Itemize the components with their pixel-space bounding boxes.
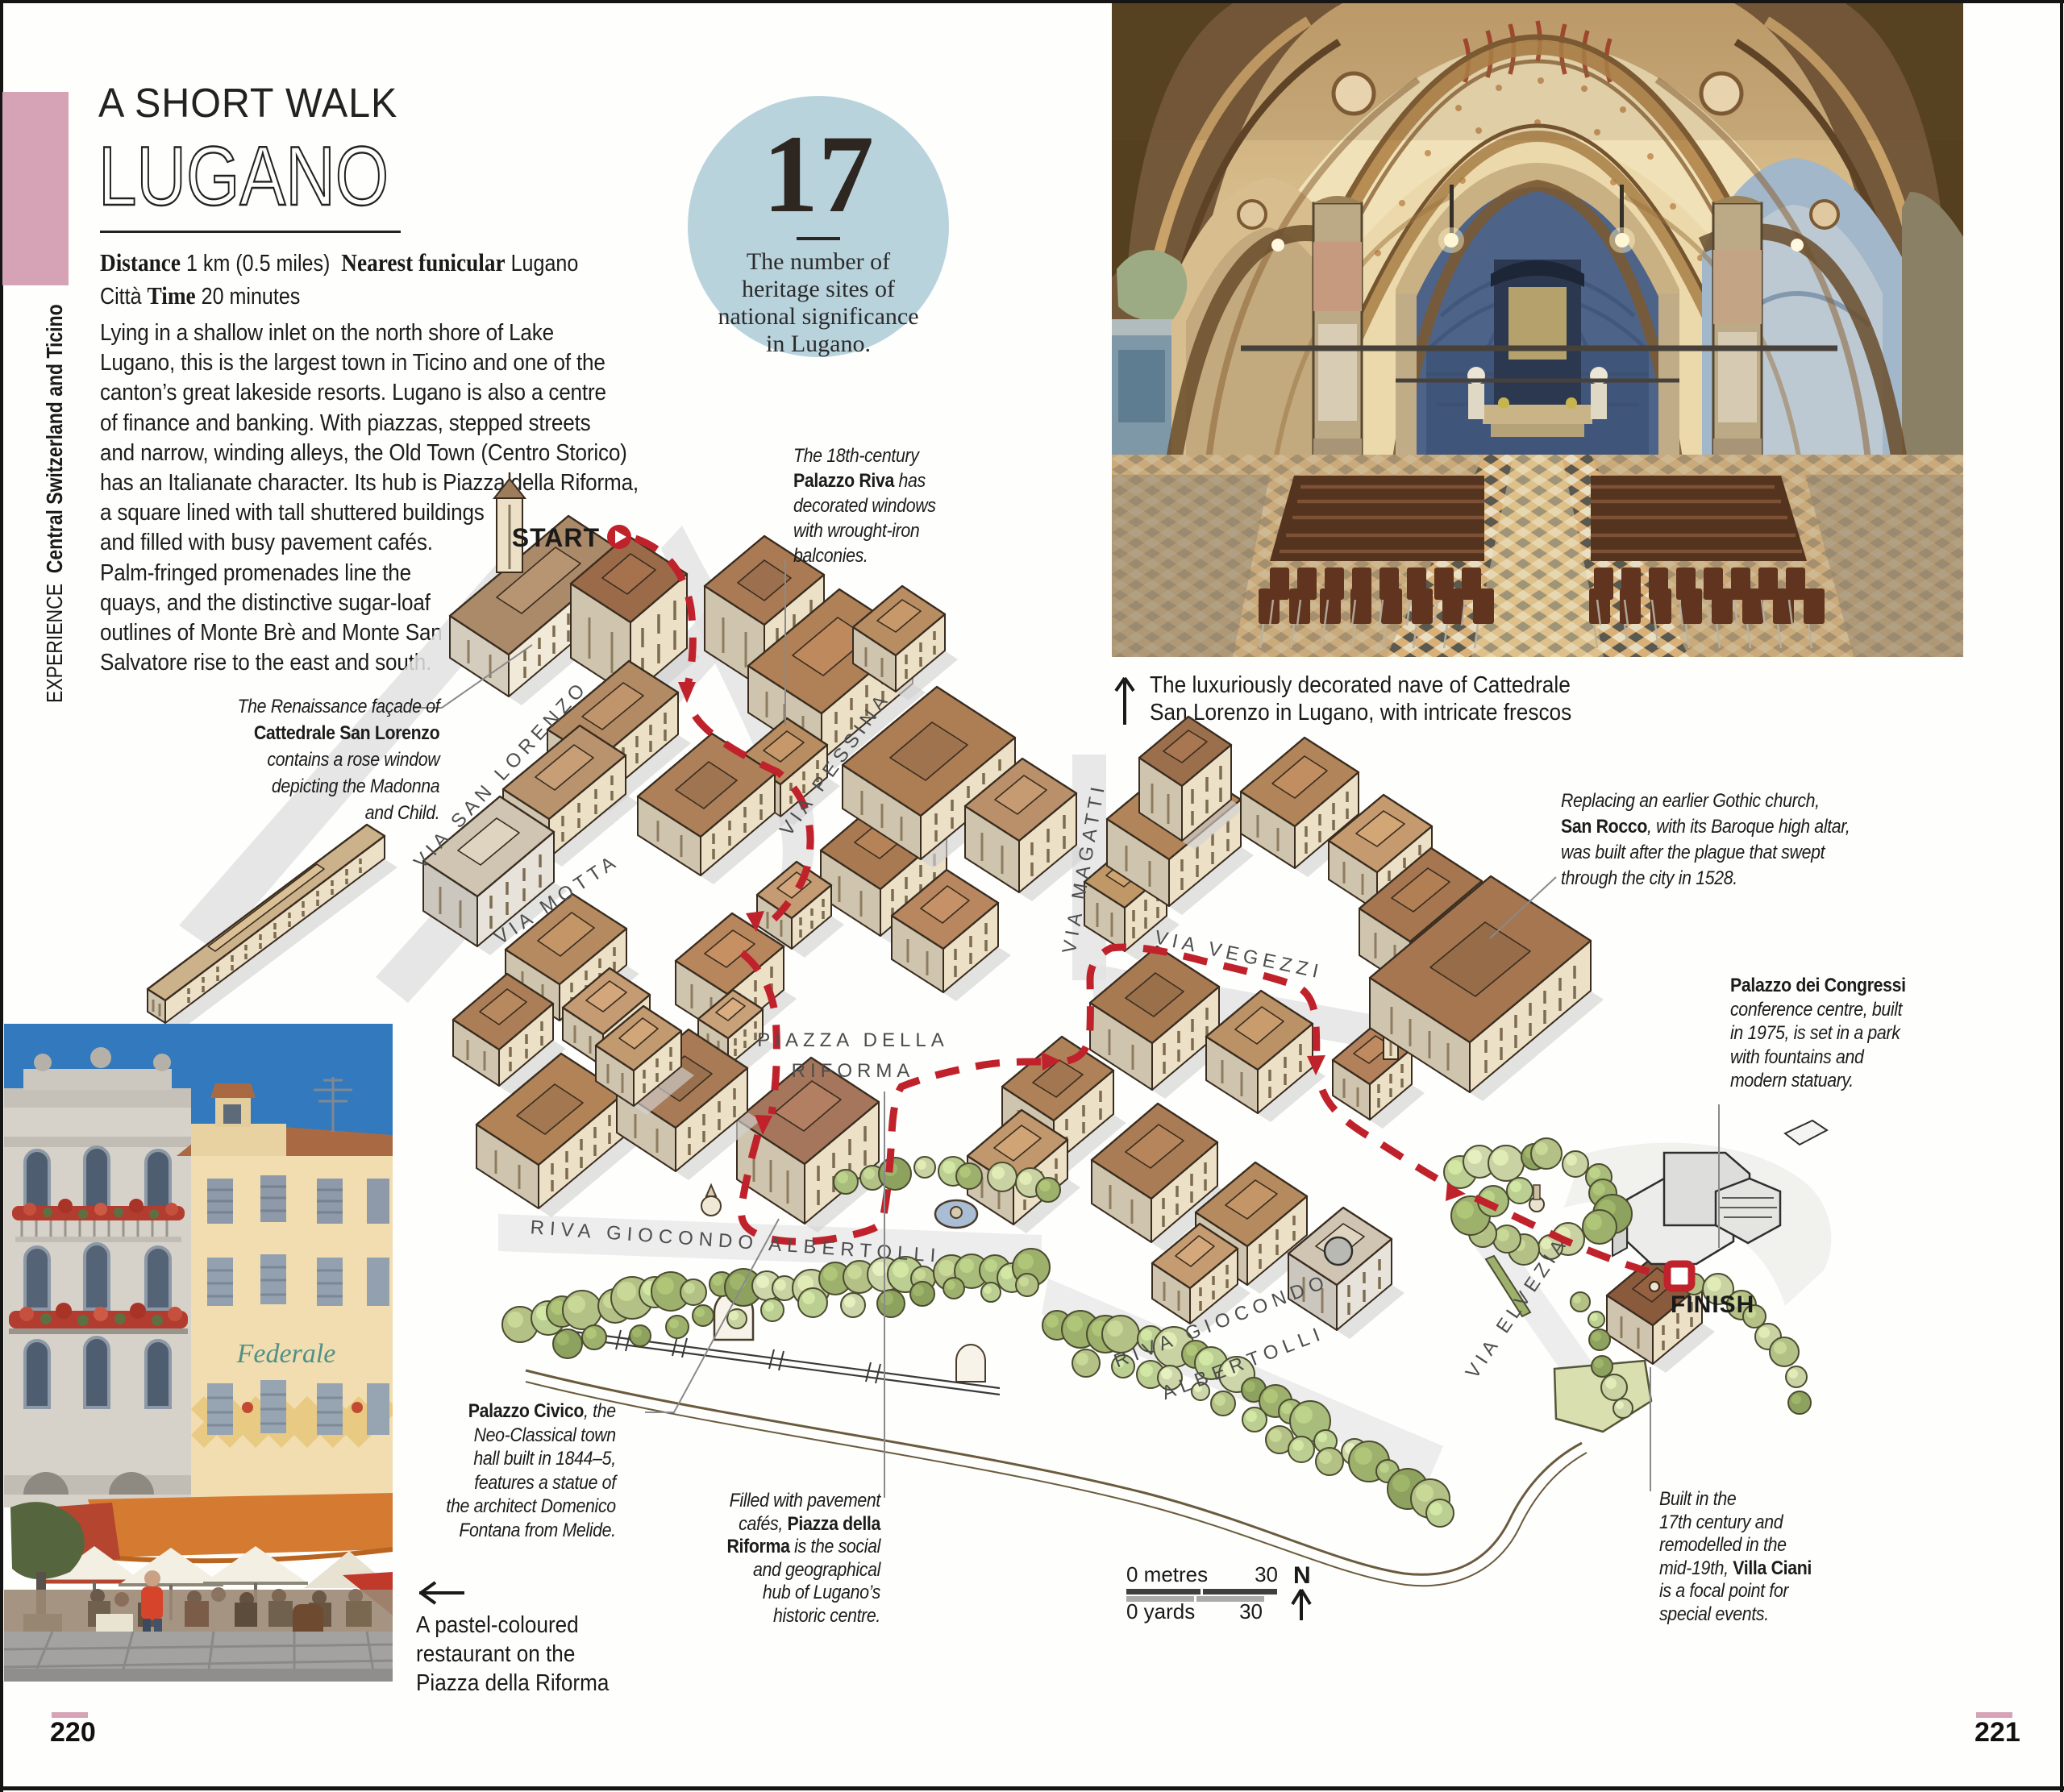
svg-text:START: START <box>512 523 600 552</box>
svg-text:30: 30 <box>1239 1599 1263 1624</box>
svg-text:0 metres: 0 metres <box>1126 1562 1208 1586</box>
svg-text:30: 30 <box>1255 1562 1278 1586</box>
svg-text:N: N <box>1293 1562 1311 1589</box>
svg-text:Federale: Federale <box>236 1339 336 1369</box>
svg-text:RIFORMA: RIFORMA <box>792 1060 915 1082</box>
svg-text:PIAZZA DELLA: PIAZZA DELLA <box>757 1029 948 1051</box>
svg-text:0 yards: 0 yards <box>1126 1599 1195 1624</box>
svg-text:FINISH: FINISH <box>1671 1291 1754 1318</box>
